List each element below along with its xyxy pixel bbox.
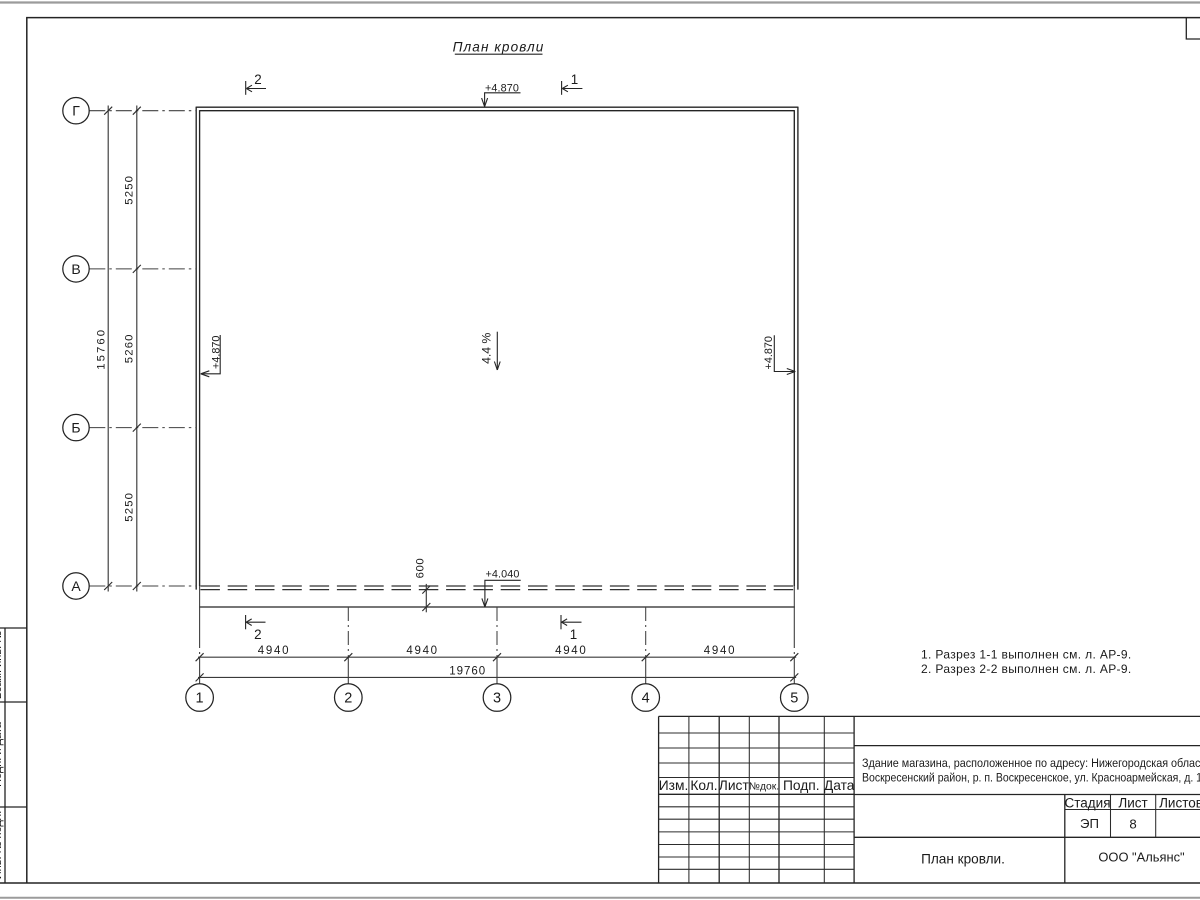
svg-text:Воскресенский район, р. п. Вос: Воскресенский район, р. п. Воскресенское… [862,771,1200,785]
svg-text:Листов: Листов [1159,795,1200,810]
svg-text:8: 8 [1129,816,1136,831]
svg-text:Дата: Дата [824,778,855,793]
svg-text:4940: 4940 [704,645,736,657]
svg-text:5250: 5250 [124,175,136,205]
svg-text:19760: 19760 [449,665,486,677]
svg-text:Стадия: Стадия [1064,795,1110,810]
svg-text:Здание магазина, расположенное: Здание магазина, расположенное по адресу… [862,756,1200,770]
svg-text:4940: 4940 [406,645,438,657]
svg-text:1: 1 [196,691,204,707]
svg-text:2. Разрез 2-2 выполнен см. л.: 2. Разрез 2-2 выполнен см. л. АР-9. [921,662,1132,676]
svg-text:3: 3 [493,691,501,707]
svg-text:ЭП: ЭП [1080,816,1099,831]
svg-text:2: 2 [344,691,352,707]
svg-text:Подп.: Подп. [783,778,820,793]
svg-text:Лист: Лист [719,778,750,793]
svg-text:Инв. № подл.: Инв. № подл. [0,811,4,880]
svg-text:А: А [71,578,81,594]
svg-text:Взам. инв. №: Взам. инв. № [0,631,4,699]
svg-text:Подп. и дата: Подп. и дата [0,721,4,787]
svg-text:2: 2 [254,72,261,87]
svg-text:5250: 5250 [124,492,136,522]
svg-text:ООО "Альянс": ООО "Альянс" [1098,849,1185,864]
svg-text:№док.: №док. [749,782,779,793]
svg-text:Б: Б [71,420,80,436]
svg-text:4.4 %: 4.4 % [480,333,494,364]
svg-text:+4.870: +4.870 [763,336,775,369]
svg-text:5: 5 [790,691,798,707]
svg-text:Г: Г [72,103,80,119]
svg-text:+4.040: +4.040 [486,569,520,581]
svg-text:1. Разрез 1-1 выполнен см. л.: 1. Разрез 1-1 выполнен см. л. АР-9. [921,648,1132,662]
svg-text:5260: 5260 [124,333,136,363]
svg-text:1: 1 [570,627,577,642]
svg-text:2: 2 [254,627,261,642]
svg-text:4940: 4940 [555,645,587,657]
svg-text:15760: 15760 [96,328,108,370]
svg-text:Изм.: Изм. [659,778,689,793]
svg-text:План кровли: План кровли [453,39,545,54]
svg-text:В: В [71,261,80,277]
svg-text:4: 4 [642,691,650,707]
svg-text:Лист: Лист [1118,795,1147,810]
svg-text:1: 1 [571,72,578,87]
svg-text:Кол.: Кол. [690,778,717,793]
svg-text:4940: 4940 [258,645,290,657]
svg-text:План кровли.: План кровли. [921,851,1005,866]
svg-text:600: 600 [414,558,426,579]
